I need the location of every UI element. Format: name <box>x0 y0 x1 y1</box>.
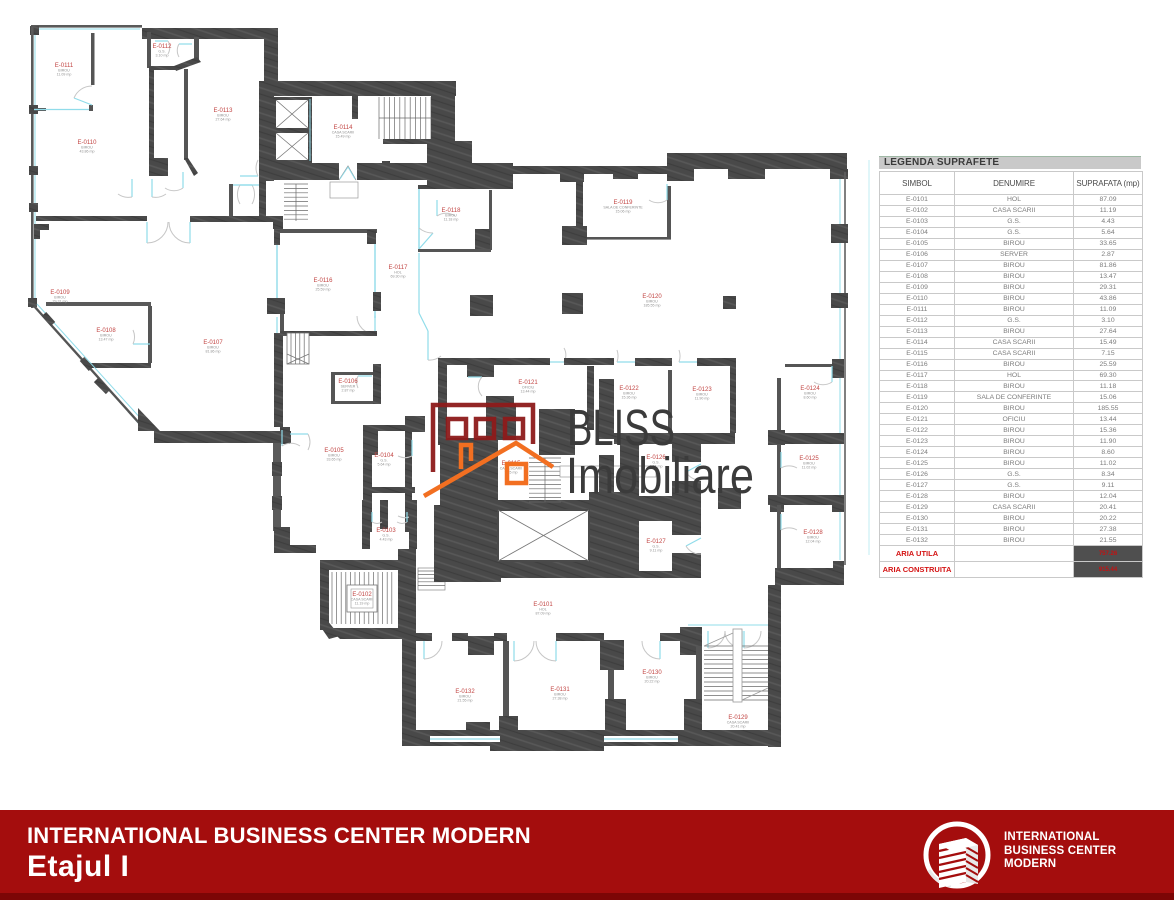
svg-text:87.09 mp: 87.09 mp <box>536 612 551 616</box>
svg-text:185.55 mp: 185.55 mp <box>644 304 661 308</box>
svg-text:27.38 mp: 27.38 mp <box>553 697 568 701</box>
svg-text:81.86 mp: 81.86 mp <box>206 350 221 354</box>
svg-text:12.04 mp: 12.04 mp <box>806 540 821 544</box>
svg-text:20.22 mp: 20.22 mp <box>645 680 660 684</box>
svg-text:15.49 mp: 15.49 mp <box>336 135 351 139</box>
svg-text:11.09 mp: 11.09 mp <box>57 73 72 77</box>
svg-text:15.06 mp: 15.06 mp <box>616 210 631 214</box>
svg-text:4.43 mp: 4.43 mp <box>380 538 393 542</box>
svg-text:20.41 mp: 20.41 mp <box>731 725 746 729</box>
svg-text:11.02 mp: 11.02 mp <box>802 466 817 470</box>
svg-text:13.47 mp: 13.47 mp <box>99 338 114 342</box>
svg-text:69.30 mp: 69.30 mp <box>391 275 406 279</box>
svg-text:5.64 mp: 5.64 mp <box>378 463 391 467</box>
svg-text:11.90 mp: 11.90 mp <box>695 397 710 401</box>
svg-text:Imobiliare: Imobiliare <box>566 447 754 504</box>
svg-text:21.55 mp: 21.55 mp <box>458 699 473 703</box>
svg-text:27.64 mp: 27.64 mp <box>216 118 231 122</box>
svg-text:43.86 mp: 43.86 mp <box>80 150 95 154</box>
svg-text:3.10 mp: 3.10 mp <box>156 54 169 58</box>
svg-text:25.59 mp: 25.59 mp <box>316 288 331 292</box>
svg-text:2.87 mp: 2.87 mp <box>342 389 355 393</box>
svg-text:13.44 mp: 13.44 mp <box>521 390 536 394</box>
svg-text:9.11 mp: 9.11 mp <box>650 549 663 553</box>
svg-text:33.65 mp: 33.65 mp <box>327 458 342 462</box>
svg-text:29.31 mp: 29.31 mp <box>53 300 68 304</box>
svg-text:11.19 mp: 11.19 mp <box>355 602 370 606</box>
svg-text:8.60 mp: 8.60 mp <box>804 396 817 400</box>
svg-text:11.18 mp: 11.18 mp <box>444 218 459 222</box>
